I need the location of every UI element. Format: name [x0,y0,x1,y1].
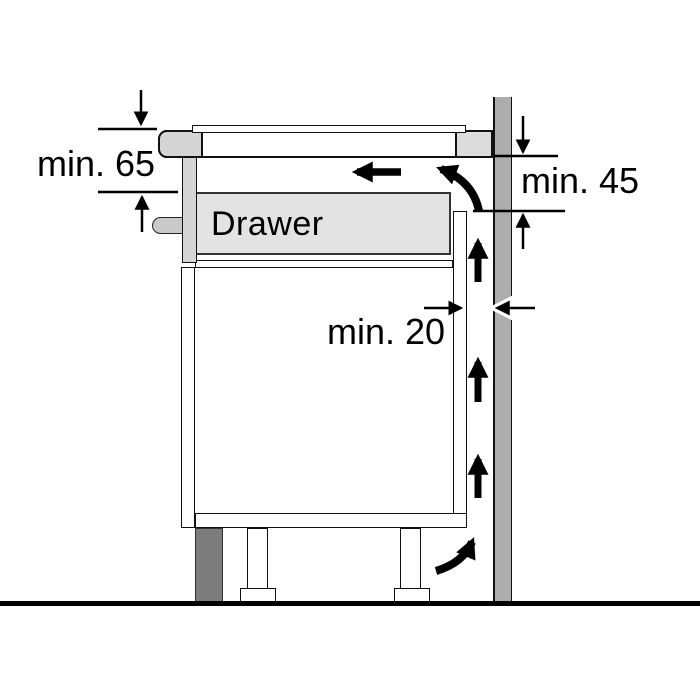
airflow-curve-bottom-arrow-icon [436,542,472,571]
min65-dimension-label: min. 65 [37,146,155,182]
min45-dimension-label: min. 45 [521,163,639,199]
min20-dimension-label: min. 20 [327,314,445,350]
airflow-curve-top-arrow-icon [441,169,479,211]
installation-diagram: Drawer min [0,0,700,700]
